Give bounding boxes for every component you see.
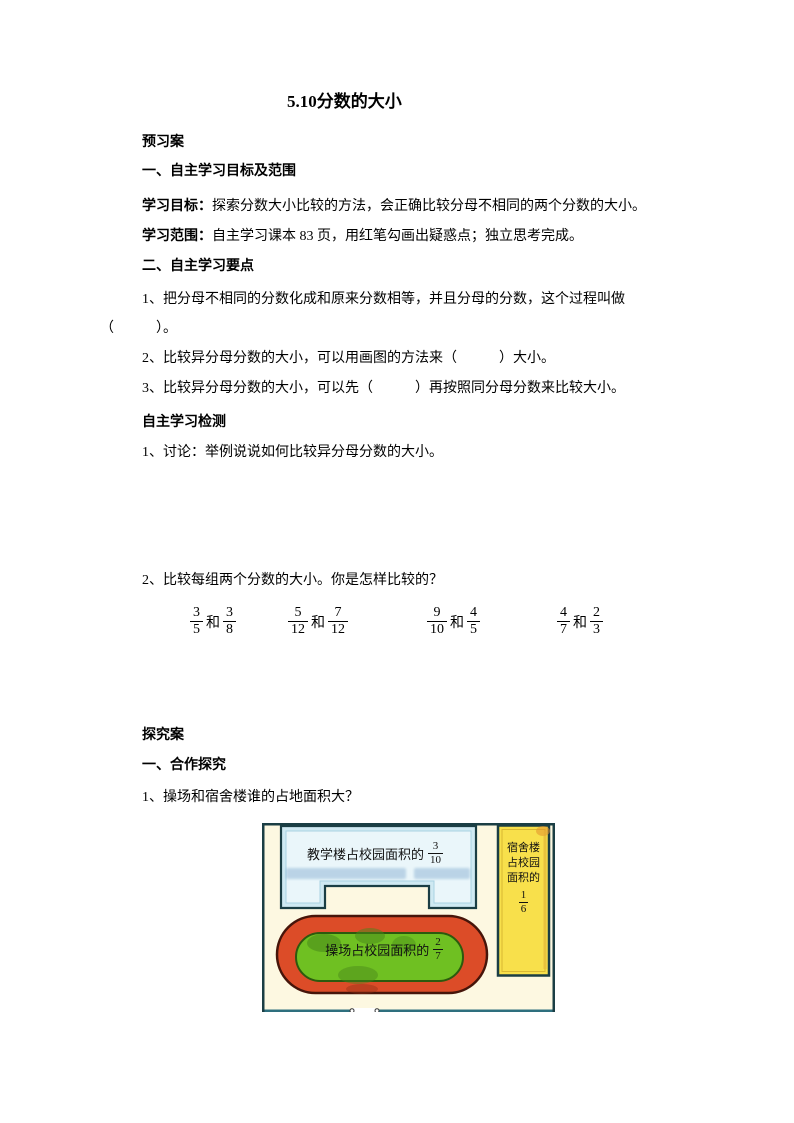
fraction: 27: [433, 936, 443, 963]
gate-opening: [353, 1008, 376, 1012]
check-item2: 2、比较每组两个分数的大小。你是怎样比较的？: [142, 572, 443, 590]
gate-post-left: [350, 1009, 354, 1012]
dorm-label: 宿舍楼 占校园 面积的 16: [498, 841, 549, 916]
learning-scope-label: 学习范围：: [142, 229, 212, 244]
worksheet-page: 5.10分数的大小 预习案 一、自主学习目标及范围 学习目标：探索分数大小比较的…: [0, 0, 794, 1123]
fraction: 512: [288, 605, 308, 638]
coop-item1: 1、操场和宿舍楼谁的占地面积大？: [142, 789, 359, 807]
section2-heading: 二、自主学习要点: [142, 258, 254, 276]
learning-goal-label: 学习目标：: [142, 199, 212, 214]
teaching-building-label: 教学楼占校园面积的 310: [290, 835, 460, 871]
fraction: 712: [328, 605, 348, 638]
fraction-pair-3: 910 和 45: [427, 605, 480, 638]
track-label: 操场占校园面积的 27: [294, 931, 474, 967]
fraction: 38: [223, 605, 236, 638]
connector-text: 和: [573, 612, 587, 632]
item1-line1: 1、把分母不相同的分数化成和原来分数相等，并且分母的分数，这个过程叫做: [142, 291, 625, 309]
fraction: 910: [427, 605, 447, 638]
explore-heading: 探究案: [142, 727, 184, 745]
fraction: 47: [557, 605, 570, 638]
fraction: 16: [519, 889, 529, 916]
connector-text: 和: [311, 612, 325, 632]
learning-scope-line: 学习范围：自主学习课本 83 页，用红笔勾画出疑惑点；独立思考完成。: [142, 228, 583, 246]
item3-line: 3、比较异分母分数的大小，可以先（ ）再按照同分母分数来比较大小。: [142, 380, 625, 398]
learning-goal-text: 探索分数大小比较的方法，会正确比较分母不相同的两个分数的大小。: [212, 199, 646, 214]
gate-post-right: [375, 1009, 379, 1012]
fraction: 45: [467, 605, 480, 638]
connector-text: 和: [450, 612, 464, 632]
preview-heading: 预习案: [142, 134, 184, 152]
connector-text: 和: [206, 612, 220, 632]
fraction: 310: [428, 840, 443, 867]
coop-heading: 一、合作探究: [142, 757, 226, 775]
campus-map-figure: 教学楼占校园面积的 310 操场占校园面积的 27 宿舍楼 占校园 面积的 16: [262, 823, 555, 1012]
fraction-pair-2: 512 和 712: [288, 605, 348, 638]
section1-heading: 一、自主学习目标及范围: [142, 163, 296, 181]
learning-scope-text: 自主学习课本 83 页，用红笔勾画出疑惑点；独立思考完成。: [212, 229, 583, 244]
page-title: 5.10分数的大小: [287, 93, 402, 111]
check-item1: 1、讨论：举例说说如何比较异分母分数的大小。: [142, 444, 443, 462]
self-check-heading: 自主学习检测: [142, 414, 226, 432]
item2-line: 2、比较异分母分数的大小，可以用画图的方法来（ ）大小。: [142, 350, 555, 368]
item1-line2: （ ）。: [100, 320, 177, 338]
fraction-pair-1: 35 和 38: [190, 605, 236, 638]
fraction-pair-4: 47 和 23: [557, 605, 603, 638]
fraction: 35: [190, 605, 203, 638]
learning-goal-line: 学习目标：探索分数大小比较的方法，会正确比较分母不相同的两个分数的大小。: [142, 198, 646, 216]
fraction: 23: [590, 605, 603, 638]
